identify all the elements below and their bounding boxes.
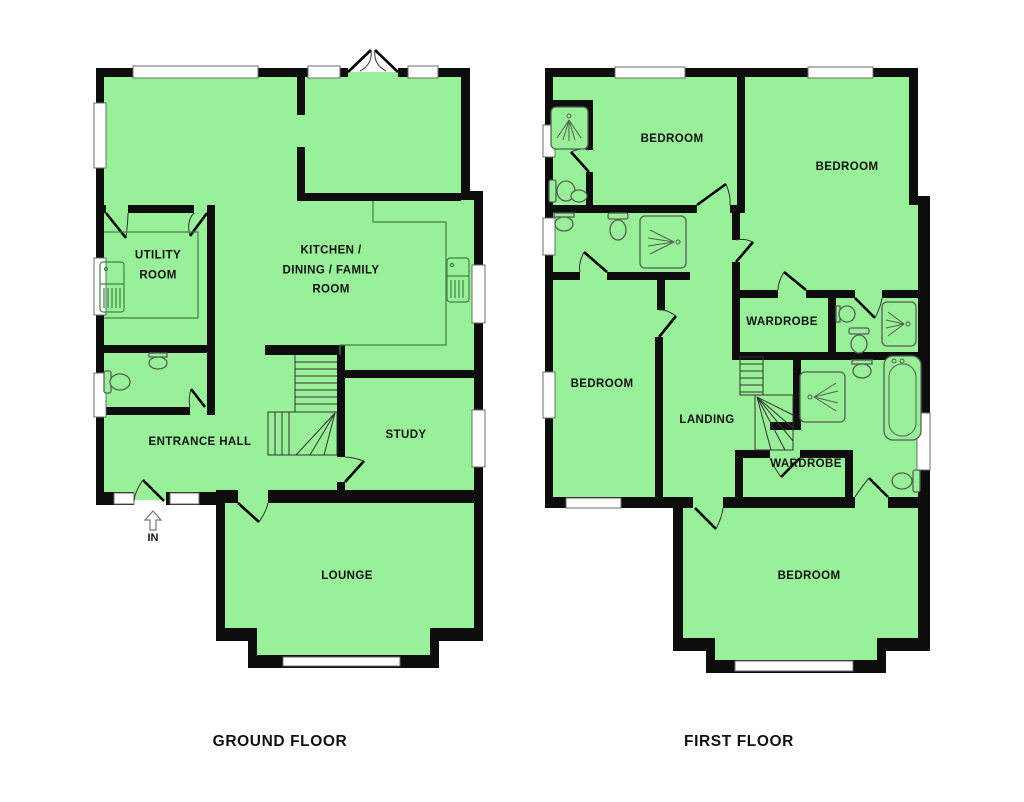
bathtub-icon	[884, 356, 921, 440]
room-label-entrance-hall: ENTRANCE HALL	[149, 433, 252, 453]
room-label-kitchen-dining-family: KITCHEN / DINING / FAMILY ROOM	[281, 242, 381, 301]
room-label-bedroom-top-left: BEDROOM	[641, 130, 704, 150]
french-doors-icon	[348, 50, 398, 72]
room-label-bedroom-top-right: BEDROOM	[816, 158, 879, 178]
room-label-bedroom-bottom: BEDROOM	[778, 567, 841, 587]
room-label-wardrobe-upper: WARDROBE	[746, 313, 818, 333]
toilet-icon	[849, 328, 869, 353]
basin-icon	[554, 213, 574, 231]
ground-floor-title: GROUND FLOOR	[213, 733, 348, 751]
shower-icon	[882, 302, 916, 346]
basin-icon	[836, 306, 855, 322]
ground-floor-plan	[94, 50, 485, 668]
room-label-wardrobe-lower: WARDROBE	[770, 455, 842, 475]
basin-icon	[852, 360, 872, 378]
room-label-study: STUDY	[386, 426, 427, 446]
shower-icon	[800, 372, 845, 422]
entrance-in-label: IN	[148, 532, 159, 544]
floorplan-canvas: UTILITY ROOM KITCHEN / DINING / FAMILY R…	[0, 0, 1024, 802]
room-label-landing: LANDING	[679, 411, 734, 431]
floorplan-drawing	[0, 0, 1024, 802]
shower-icon	[551, 107, 588, 149]
room-label-bedroom-mid-left: BEDROOM	[571, 375, 634, 395]
room-label-lounge: LOUNGE	[321, 567, 373, 587]
entrance-arrow-icon	[145, 511, 161, 530]
toilet-icon	[608, 213, 628, 240]
first-floor-title: FIRST FLOOR	[684, 733, 794, 751]
shower-icon	[640, 216, 686, 268]
room-label-utility-room: UTILITY ROOM	[122, 246, 194, 285]
basin-icon	[571, 190, 587, 202]
wc-basin-icon	[149, 353, 167, 369]
